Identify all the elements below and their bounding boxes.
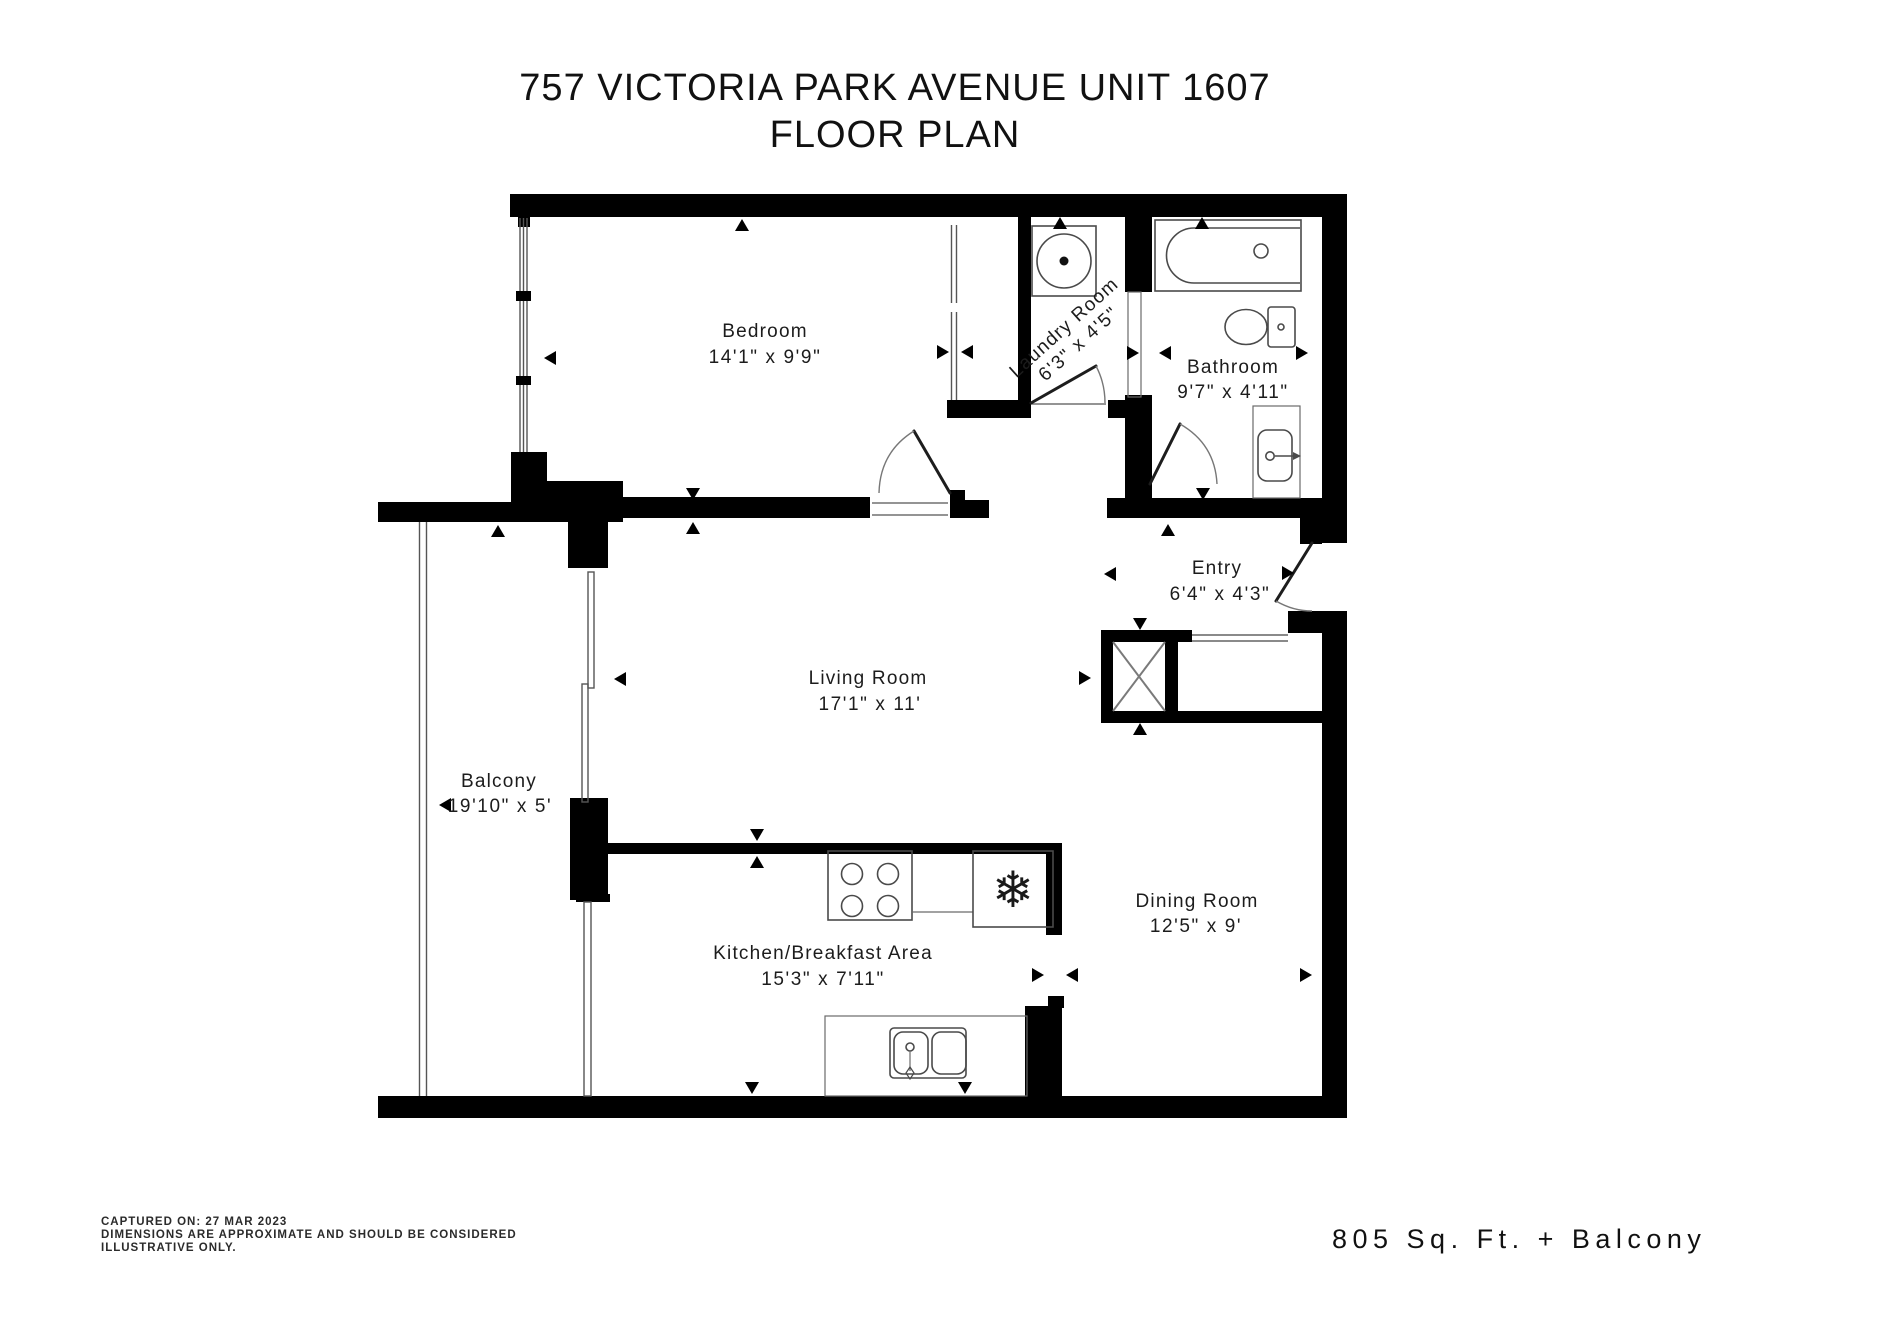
svg-text:9'7" x 4'11": 9'7" x 4'11" (1177, 382, 1288, 403)
entry-closet-track-icon (1192, 635, 1288, 641)
svg-text:DIMENSIONS ARE APPROXIMATE AND: DIMENSIONS ARE APPROXIMATE AND SHOULD BE… (101, 1229, 517, 1241)
svg-text:ILLUSTRATIVE ONLY.: ILLUSTRATIVE ONLY. (101, 1242, 237, 1254)
snowflake-icon: ❄ (992, 862, 1034, 918)
room-label-dining: Dining Room 12'5" x 9' (1135, 891, 1258, 937)
svg-text:Entry: Entry (1192, 558, 1242, 579)
area-summary: 805 Sq. Ft. + Balcony (1332, 1224, 1706, 1254)
svg-text:Bathroom: Bathroom (1187, 357, 1279, 378)
svg-text:15'3" x 7'11": 15'3" x 7'11" (761, 969, 885, 990)
svg-text:Living Room: Living Room (809, 668, 928, 689)
stove-icon (828, 851, 973, 920)
svg-text:17'1" x 11': 17'1" x 11' (818, 694, 921, 715)
front-door-icon (1276, 543, 1312, 611)
svg-text:CAPTURED ON: 27 MAR 2023: CAPTURED ON: 27 MAR 2023 (101, 1216, 287, 1228)
washer-icon (1032, 226, 1096, 296)
svg-text:19'10" x 5': 19'10" x 5' (448, 796, 553, 817)
bedroom-door-icon (879, 431, 950, 493)
room-label-kitchen: Kitchen/Breakfast Area 15'3" x 7'11" (713, 943, 933, 990)
closet-x-icon (1113, 642, 1165, 711)
svg-text:Dining Room: Dining Room (1135, 891, 1258, 912)
bathtub-icon (1155, 220, 1301, 291)
floor-plan-page: 757 VICTORIA PARK AVENUE UNIT 1607 FLOOR… (0, 0, 1900, 1343)
page-subtitle: FLOOR PLAN (770, 114, 1021, 156)
room-label-entry: Entry 6'4" x 4'3" (1170, 558, 1271, 605)
svg-text:Balcony: Balcony (461, 771, 537, 792)
svg-text:6'4" x 4'3": 6'4" x 4'3" (1170, 584, 1271, 605)
kitchen-sink-icon (890, 1028, 966, 1079)
room-label-bedroom: Bedroom 14'1" x 9'9" (709, 321, 822, 368)
disclaimer: CAPTURED ON: 27 MAR 2023 DIMENSIONS ARE … (101, 1216, 517, 1254)
room-label-bathroom: Bathroom 9'7" x 4'11" (1177, 357, 1288, 403)
balcony-railing-icon (420, 522, 427, 1096)
toilet-icon (1225, 307, 1295, 347)
bedroom-window-icon (516, 218, 531, 452)
svg-text:Kitchen/Breakfast Area: Kitchen/Breakfast Area (713, 943, 933, 964)
page-title: 757 VICTORIA PARK AVENUE UNIT 1607 (519, 67, 1270, 109)
room-label-living: Living Room 17'1" x 11' (809, 668, 928, 715)
door-thresholds (872, 404, 1106, 515)
room-label-balcony: Balcony 19'10" x 5' (448, 771, 553, 817)
fridge-icon: ❄ (973, 851, 1053, 927)
svg-text:Bedroom: Bedroom (722, 321, 808, 342)
bedroom-partition-icon (948, 225, 959, 400)
svg-text:14'1" x 9'9": 14'1" x 9'9" (709, 347, 822, 368)
floor-plan-canvas: 757 VICTORIA PARK AVENUE UNIT 1607 FLOOR… (0, 0, 1900, 1343)
svg-text:12'5" x 9': 12'5" x 9' (1150, 916, 1242, 937)
vanity-sink-icon (1253, 406, 1301, 498)
